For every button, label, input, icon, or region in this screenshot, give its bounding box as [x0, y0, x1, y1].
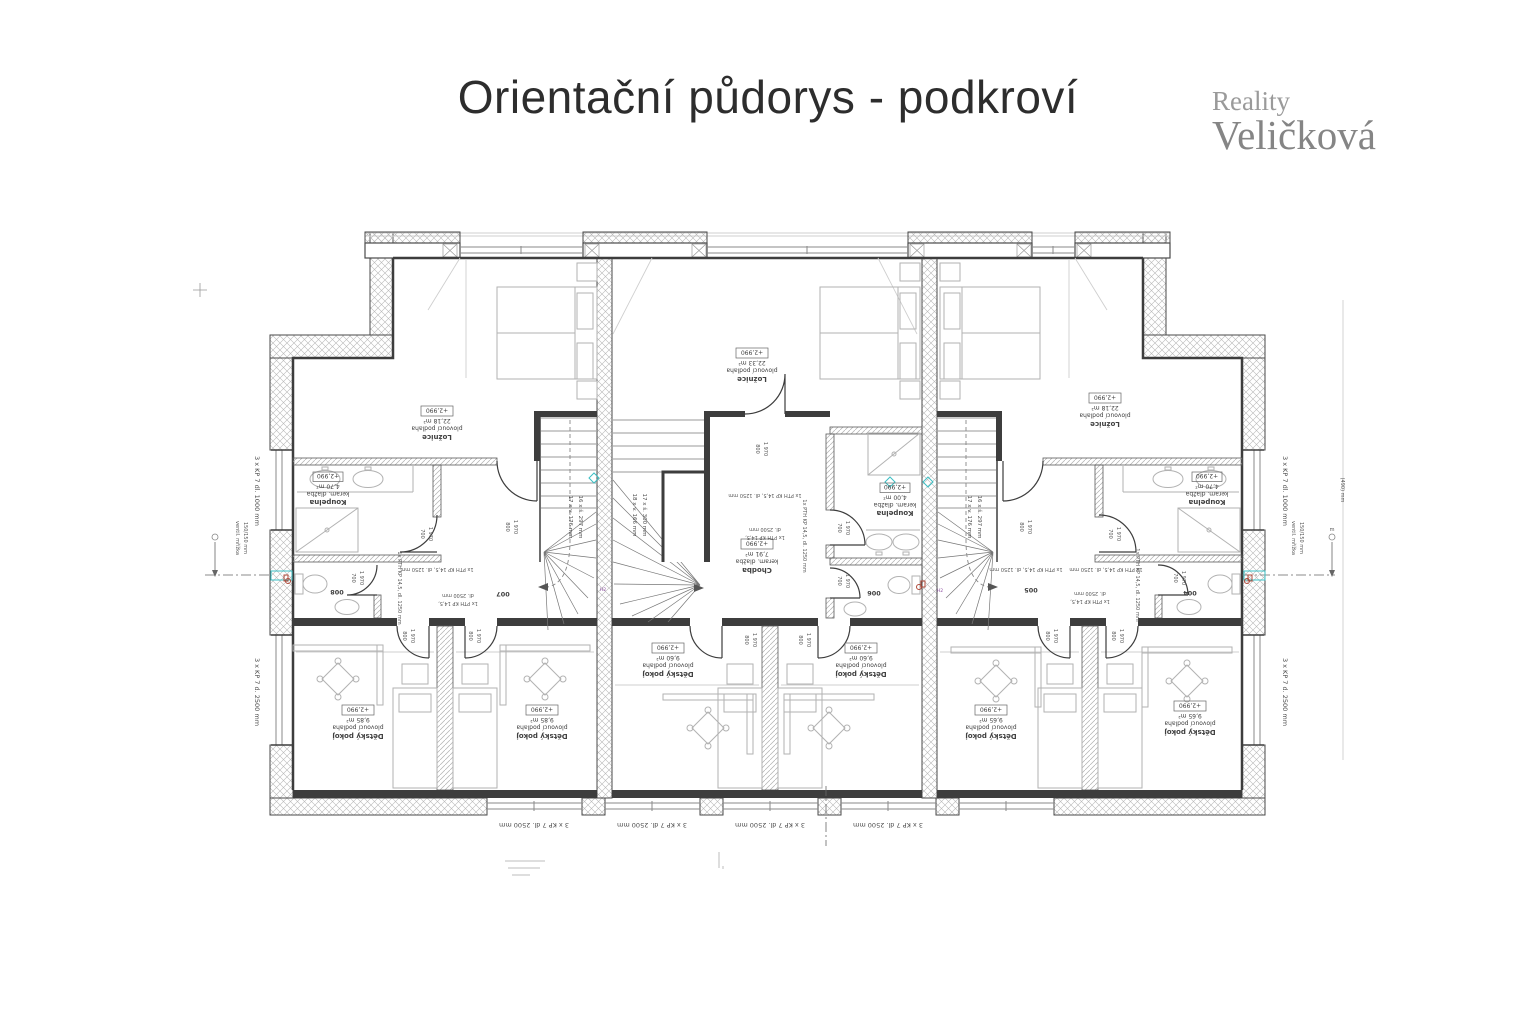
section-mark-m: m	[1330, 527, 1335, 533]
door-width: 700	[419, 529, 425, 539]
stair-rise-right: 17 x v. 176 mm	[966, 495, 972, 538]
room-area: 4,70 m²	[1195, 483, 1219, 490]
room-area: 7,91 m²	[745, 550, 769, 557]
room-label-loznice-right: Ložnice plovoucí podlaha 22,18 m² +2,990	[1079, 393, 1130, 428]
room-label-detsky-left-2: Dětský pokoj plovoucí podlaha 9,85 m² +2…	[516, 705, 568, 741]
lintel-2500-right-l1: 1x PTH KP 14,5,	[1070, 598, 1110, 604]
room-area: 22,18 m²	[1091, 404, 1119, 411]
floorplan-page: Orientační půdorys - podkroví Reality Ve…	[0, 0, 1536, 1024]
staircase-center: 18 x v. 166 mm 17 x š. 300 mm	[613, 420, 704, 622]
room-floor: keram. dlažba	[735, 558, 778, 565]
room-label-koupelna-center: Koupelna keram. dlažba 4,00 m² +2,990	[873, 483, 916, 517]
room-level: +2,990	[531, 706, 553, 713]
room-number-wc-right: 004	[1183, 589, 1197, 597]
room-floor: plovoucí podlaha	[835, 662, 886, 669]
room-floor: keram. dlažba	[873, 501, 916, 508]
room-area: 9,65 m²	[1178, 712, 1202, 719]
door-height: 1 970	[475, 629, 481, 643]
mark-h2-right: H2	[937, 588, 943, 594]
room-name: Dětský pokoj	[516, 732, 567, 741]
door-height: 1 970	[1052, 629, 1058, 643]
room-area: 9,60 m²	[849, 654, 873, 661]
room-floor: keram. dlažba	[306, 490, 349, 497]
dim-window-bottom-3: 3 x KP 7 dl. 2500 mm	[735, 821, 805, 829]
room-name: Ložnice	[422, 433, 452, 441]
room-name: Dětský pokoj	[835, 670, 886, 679]
room-floor: plovoucí podlaha	[642, 662, 693, 669]
staircase-left: 17 x v. 176 mm 16 x š. 297 mm	[538, 415, 596, 630]
room-area: 9,85 m²	[346, 716, 370, 723]
room-label-detsky-left-1: Dětský pokoj plovoucí podlaha 9,85 m² +2…	[332, 705, 384, 741]
room-name: Koupelna	[1188, 498, 1225, 506]
vent-note-left-2: 150/150 mm	[242, 522, 248, 554]
door-width: 700	[1107, 529, 1113, 539]
room-label-koupelna-left: Koupelna keram. dlažba 4,70 m² +2,990	[306, 472, 349, 506]
stair-arrow-right	[988, 583, 998, 591]
room-label-loznice-center: Ložnice plovoucí podlaha 22,33 m² +2,990	[726, 348, 777, 383]
dim-window-bottom-1: 3 x KP 7 dl. 2500 mm	[499, 821, 569, 829]
dim-window-bottom-4: 3 x KP 7 dl. 2500 mm	[853, 821, 923, 829]
door-height: 1 970	[358, 571, 364, 585]
door-width: 800	[1044, 631, 1050, 641]
room-floor: plovoucí podlaha	[1164, 720, 1215, 727]
lintel-1250-center: 1x PTH KP 14,5, dl. 1250 mm	[728, 492, 801, 498]
door-height: 1 970	[805, 633, 811, 647]
stair-rise-center: 18 x v. 166 mm	[631, 493, 637, 536]
dim-side-right-top: 3 x KP 7 dl. 1000 mm	[1281, 456, 1289, 526]
survey-mark	[193, 283, 207, 297]
dim-side-right-bottom: 3 x KP 7 d. 2500 mm	[1281, 658, 1289, 726]
stair-run-left: 16 x š. 297 mm	[577, 495, 584, 538]
room-name: Koupelna	[309, 498, 346, 506]
door-width: 700	[350, 573, 356, 583]
door-height: 1 970	[409, 629, 415, 643]
lintel-2500-right-l2: dl. 2500 mm	[1074, 590, 1106, 596]
lintel-2500-left-l2: dl. 2500 mm	[442, 592, 474, 598]
door-width: 800	[754, 444, 760, 454]
room-label-detsky-center-1: Dětský pokoj plovoucí podlaha 9,60 m² +2…	[642, 643, 694, 679]
room-floor: plovoucí podlaha	[332, 724, 383, 731]
door-width: 700	[836, 576, 842, 586]
mark-h2-left: H2	[600, 587, 606, 593]
room-name: Chodba	[742, 566, 772, 574]
room-area: 4,00 m²	[883, 494, 907, 501]
room-number-hall-left: 007	[496, 590, 510, 598]
lintel-1250-left-vert: 1x PTH KP 14,5, dl. 1250 mm	[396, 551, 402, 624]
door-width: 800	[1110, 631, 1116, 641]
room-number-wc-left: 008	[330, 588, 344, 596]
doors	[347, 374, 1188, 658]
room-label-loznice-left: Ložnice plovoucí podlaha 22,18 m² +2,990	[411, 406, 462, 441]
door-width: 800	[504, 522, 510, 532]
lintel-2500-left-l1: 1x PTH KP 14,5,	[438, 600, 478, 606]
stair-rise-left: 17 x v. 176 mm	[567, 495, 573, 538]
dim-side-left-bottom: 3 x KP 7 d. 2500 mm	[253, 658, 261, 726]
stair-arrow-left	[538, 583, 548, 591]
room-level: +2,990	[426, 407, 448, 414]
bottom-windows	[487, 801, 1054, 811]
door-height: 1 970	[751, 633, 757, 647]
room-name: Dětský pokoj	[332, 732, 383, 741]
door-height: 1 970	[1118, 629, 1124, 643]
door-width: 800	[797, 635, 803, 645]
lintel-1250-right-1: 1x PTH KP 14,5, dl. 1250 mm	[989, 566, 1062, 572]
room-floor: plovoucí podlaha	[516, 724, 567, 731]
level-mark-right: (490) mm	[1339, 478, 1345, 503]
lintel-2500-center-l2: dl. 2500 mm	[749, 526, 781, 532]
bed-left	[497, 263, 597, 399]
stair-run-right: 16 x š. 297 mm	[976, 495, 983, 538]
door-width: 700	[1172, 573, 1178, 583]
door-height: 1 970	[844, 574, 850, 588]
room-level: +2,990	[1179, 702, 1201, 709]
room-floor: plovoucí podlaha	[1079, 412, 1130, 419]
door-width: 700	[836, 523, 842, 533]
room-floor: keram. dlažba	[1185, 490, 1228, 497]
door-height: 1 970	[427, 527, 433, 541]
stair-run-center: 17 x š. 300 mm	[641, 493, 648, 536]
vent-note-right-2: 150/150 mm	[1298, 522, 1304, 554]
room-floor: plovoucí podlaha	[411, 425, 462, 432]
stamp-mark	[505, 852, 723, 875]
room-area: 22,33 m²	[738, 359, 766, 366]
room-level: +2,990	[980, 706, 1002, 713]
room-label-chodba: Chodba keram. dlažba 7,91 m² +2,990	[735, 539, 778, 574]
bed-right	[940, 263, 1040, 399]
vent-note-right-1: ventil. mřížka	[1290, 521, 1297, 555]
room-area: 4,70 m²	[316, 483, 340, 490]
room-level: +2,990	[657, 644, 679, 651]
top-gable-band	[365, 232, 1170, 258]
door-height: 1 970	[762, 442, 768, 456]
room-label-detsky-center-2: Dětský pokoj plovoucí podlaha 9,60 m² +2…	[835, 643, 887, 679]
door-height: 1 970	[1180, 571, 1186, 585]
section-arrow-left	[212, 534, 218, 577]
room-level: +2,990	[884, 483, 906, 490]
room-number-hall-right: 005	[1024, 586, 1038, 594]
door-width: 800	[467, 631, 473, 641]
room-name: Dětský pokoj	[642, 670, 693, 679]
dimension-texts: 3 x KP 7 dl. 2500 mm 3 x KP 7 dl. 2500 m…	[234, 442, 1345, 829]
door-height: 1 970	[1115, 527, 1121, 541]
room-number-wc-center: 006	[867, 589, 881, 597]
room-level: +2,990	[850, 644, 872, 651]
room-name: Ložnice	[1090, 420, 1120, 428]
room-area: 9,85 m²	[530, 716, 554, 723]
room-name: Ložnice	[737, 375, 767, 383]
section-arrow-right: m	[1329, 527, 1335, 577]
room-level: +2,990	[347, 706, 369, 713]
lintel-1250-center-vert: 1x PTH KP 14,5, dl. 1250 mm	[801, 499, 807, 572]
room-label-detsky-right-2: Dětský pokoj plovoucí podlaha 9,65 m² +2…	[1164, 701, 1216, 737]
vent-note-left-1: ventil. mřížka	[234, 521, 241, 555]
bed-center	[820, 263, 920, 399]
staircase-right: 17 x v. 176 mm 16 x š. 297 mm	[938, 415, 998, 630]
room-floor: plovoucí podlaha	[965, 724, 1016, 731]
lintel-1250-right-vert: 1x PTH KP 14,5, dl. 1250 mm	[1134, 548, 1140, 621]
dim-side-left-top: 3 x KP 7 dl. 1000 mm	[253, 456, 261, 526]
lintel-1250-left: 1x PTH KP 14,5, dl. 1250 mm	[400, 566, 473, 572]
room-name: Koupelna	[876, 509, 913, 517]
room-level: +2,990	[741, 349, 763, 356]
room-area: 9,60 m²	[656, 654, 680, 661]
door-width: 800	[401, 631, 407, 641]
door-height: 1 970	[1026, 520, 1032, 534]
lintel-1250-right-2: 1x PTH KP 14,5, dl. 1250 mm	[1069, 566, 1142, 572]
floorplan-drawing: 17 x v. 176 mm 16 x š. 297 mm 18 x v. 16…	[0, 0, 1536, 1024]
room-label-detsky-right-1: Dětský pokoj plovoucí podlaha 9,65 m² +2…	[965, 705, 1017, 741]
door-height: 1 970	[512, 520, 518, 534]
lintel-2500-center-l1: 1x PTH KP 14,5,	[745, 534, 785, 540]
room-level: +2,990	[1196, 472, 1218, 479]
room-area: 9,65 m²	[979, 716, 1003, 723]
room-level: +2,990	[317, 472, 339, 479]
room-floor: plovoucí podlaha	[726, 367, 777, 374]
room-label-koupelna-right: Koupelna keram. dlažba 4,70 m² +2,990	[1185, 472, 1228, 506]
room-area: 22,18 m²	[423, 417, 451, 424]
door-height: 1 970	[844, 521, 850, 535]
room-level: +2,990	[1094, 394, 1116, 401]
room-name: Dětský pokoj	[965, 732, 1016, 741]
door-width: 800	[1018, 522, 1024, 532]
room-name: Dětský pokoj	[1164, 728, 1215, 737]
dim-window-bottom-2: 3 x KP 7 dl. 2500 mm	[617, 821, 687, 829]
door-width: 800	[743, 635, 749, 645]
